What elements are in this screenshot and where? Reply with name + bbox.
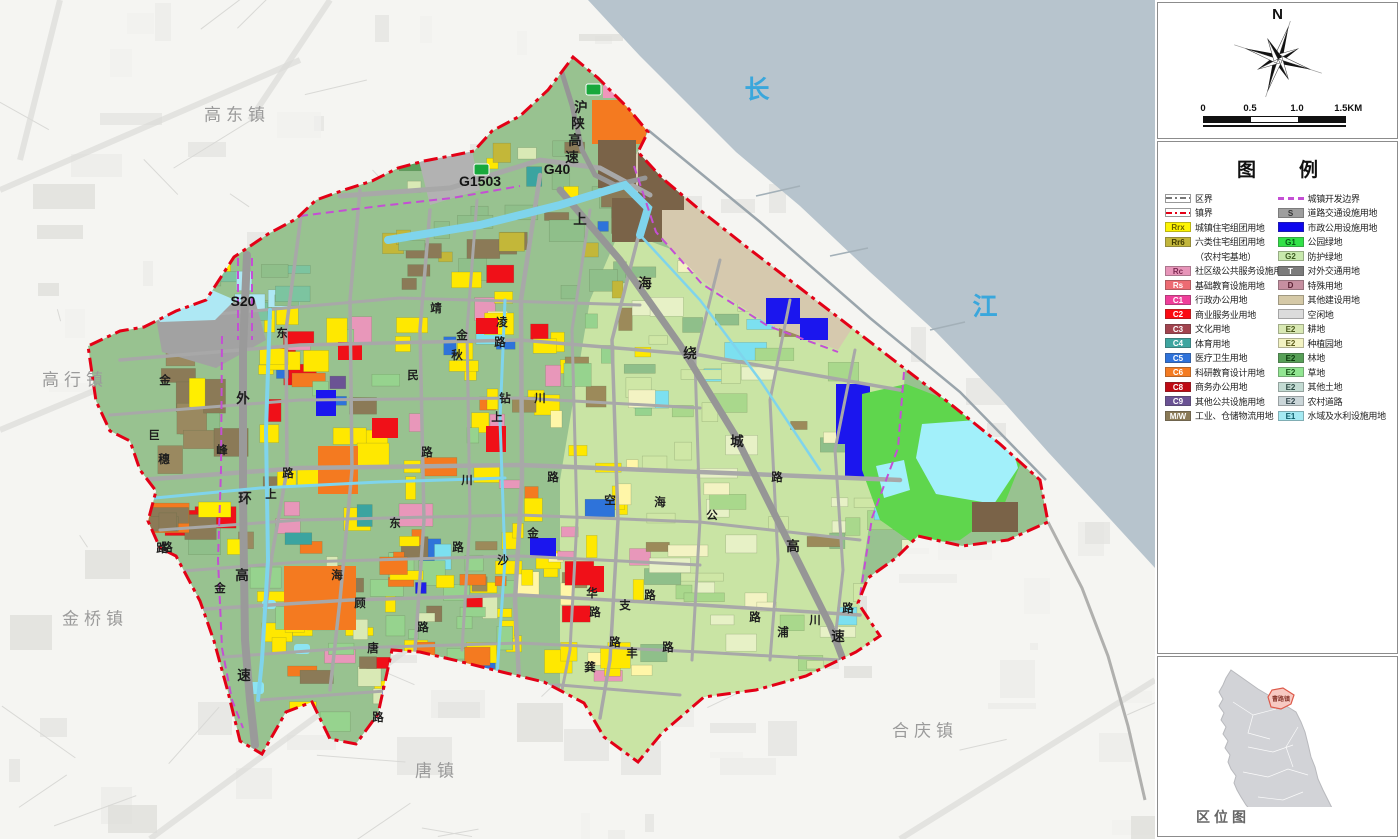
legend-item: C6科研教育设计用地 bbox=[1165, 365, 1278, 380]
legend-line-pattern bbox=[1166, 197, 1190, 199]
legend-color-swatch: G1 bbox=[1278, 237, 1304, 247]
legend-line-swatch bbox=[1165, 194, 1191, 203]
legend-item: 镇界 bbox=[1165, 206, 1278, 221]
legend-item-label: 商务办公用地 bbox=[1195, 380, 1247, 393]
legend-item: Rc社区级公共服务设施用地 bbox=[1165, 264, 1278, 279]
legend-item: 其他建设用地 bbox=[1278, 293, 1391, 308]
legend-item: M/W工业、仓储物流用地 bbox=[1165, 409, 1278, 424]
legend-sub-label: （农村宅基地） bbox=[1195, 250, 1256, 263]
legend-item-label: 种植园地 bbox=[1308, 337, 1343, 350]
legend-line-swatch bbox=[1278, 194, 1304, 203]
legend-item-label: 工业、仓储物流用地 bbox=[1195, 409, 1273, 422]
legend-color-swatch: G2 bbox=[1278, 251, 1304, 261]
legend-item-label: 六类住宅组团用地 bbox=[1195, 235, 1265, 248]
legend-item: C4体育用地 bbox=[1165, 336, 1278, 351]
locator-caption: 区位图 bbox=[1196, 807, 1250, 827]
legend-color-swatch: E2 bbox=[1278, 396, 1304, 406]
legend-line-pattern bbox=[1166, 212, 1190, 214]
legend-color-swatch: C6 bbox=[1165, 367, 1191, 377]
legend-color-swatch: Rc bbox=[1165, 266, 1191, 276]
scale-tick: 1.5KM bbox=[1334, 103, 1362, 114]
legend-columns: 区界镇界Rrx城镇住宅组团用地Rr6六类住宅组团用地（农村宅基地）Rc社区级公共… bbox=[1158, 191, 1397, 423]
legend-item: E2种植园地 bbox=[1278, 336, 1391, 351]
locator-panel: 曹路镇 区位图 bbox=[1157, 656, 1398, 837]
legend-color-swatch: E2 bbox=[1278, 382, 1304, 392]
legend-column-right: 城镇开发边界S道路交通设施用地市政公用设施用地G1公园绿地G2防护绿地T对外交通… bbox=[1278, 191, 1391, 423]
scale-bar-segments bbox=[1203, 116, 1346, 123]
legend-item: E2耕地 bbox=[1278, 322, 1391, 337]
legend-item-label: 区界 bbox=[1195, 192, 1212, 205]
legend-item: 市政公用设施用地 bbox=[1278, 220, 1391, 235]
legend-color-swatch: C1 bbox=[1165, 295, 1191, 305]
legend-color-swatch: Rr6 bbox=[1165, 237, 1191, 247]
legend-color-swatch: C5 bbox=[1165, 353, 1191, 363]
legend-item-label: 对外交通用地 bbox=[1308, 264, 1360, 277]
legend-item: 空闲地 bbox=[1278, 307, 1391, 322]
legend-color-swatch: Rs bbox=[1165, 280, 1191, 290]
legend-color-swatch bbox=[1278, 295, 1304, 305]
legend-item-label: 公园绿地 bbox=[1308, 235, 1343, 248]
legend-item: E1水域及水利设施用地 bbox=[1278, 409, 1391, 424]
legend-item-label: 草地 bbox=[1308, 366, 1325, 379]
legend-item: C9其他公共设施用地 bbox=[1165, 394, 1278, 409]
legend-color-swatch: E1 bbox=[1278, 411, 1304, 421]
legend-color-swatch: E2 bbox=[1278, 367, 1304, 377]
legend-color-swatch: C2 bbox=[1165, 309, 1191, 319]
north-arrow-icon bbox=[1223, 17, 1333, 101]
legend-color-swatch bbox=[1278, 309, 1304, 319]
legend-item: Rs基础教育设施用地 bbox=[1165, 278, 1278, 293]
legend-color-swatch bbox=[1278, 222, 1304, 232]
legend-item-label: 其他公共设施用地 bbox=[1195, 395, 1265, 408]
legend-item-label: 林地 bbox=[1308, 351, 1325, 364]
highway-shield-icon bbox=[474, 164, 489, 175]
locator-highlight-label: 曹路镇 bbox=[1272, 695, 1290, 703]
scale-tick: 1.0 bbox=[1290, 103, 1303, 114]
legend-color-swatch: T bbox=[1278, 266, 1304, 276]
north-label: N bbox=[1158, 6, 1397, 23]
legend-item: E2草地 bbox=[1278, 365, 1391, 380]
legend-item: C1行政办公用地 bbox=[1165, 293, 1278, 308]
legend-item: C3文化用地 bbox=[1165, 322, 1278, 337]
planning-map: 高东镇高行镇金桥镇唐镇合庆镇长江G1503G40S20沪陕高速上海绕城高速外环高… bbox=[0, 0, 1155, 839]
scale-segment bbox=[1251, 117, 1298, 122]
legend-item: C2商业服务业用地 bbox=[1165, 307, 1278, 322]
legend-item-label: 农村道路 bbox=[1308, 395, 1343, 408]
legend-item-label: 镇界 bbox=[1195, 206, 1212, 219]
legend-item-label: 防护绿地 bbox=[1308, 250, 1343, 263]
legend-item: C5医疗卫生用地 bbox=[1165, 351, 1278, 366]
legend-item: 区界 bbox=[1165, 191, 1278, 206]
legend-color-swatch: Rrx bbox=[1165, 222, 1191, 232]
legend-item-label: 行政办公用地 bbox=[1195, 293, 1247, 306]
legend-item-label: 医疗卫生用地 bbox=[1195, 351, 1247, 364]
legend-item-label: 社区级公共服务设施用地 bbox=[1195, 264, 1291, 277]
legend-item-label: 文化用地 bbox=[1195, 322, 1230, 335]
legend-item: Rr6六类住宅组团用地 bbox=[1165, 235, 1278, 250]
legend-item: Rrx城镇住宅组团用地 bbox=[1165, 220, 1278, 235]
legend-color-swatch: C8 bbox=[1165, 382, 1191, 392]
legend-item-label: 空闲地 bbox=[1308, 308, 1334, 321]
legend-item-label: 耕地 bbox=[1308, 322, 1325, 335]
legend-line-pattern bbox=[1278, 197, 1304, 200]
scale-tick-labels: 00.51.01.5KM bbox=[1203, 103, 1353, 116]
scale-bar-baseline bbox=[1203, 125, 1346, 127]
legend-item-label: 其他建设用地 bbox=[1308, 293, 1360, 306]
legend-color-swatch: E2 bbox=[1278, 338, 1304, 348]
legend-item-label: 体育用地 bbox=[1195, 337, 1230, 350]
north-scale-panel: N 00.51.01.5KM bbox=[1157, 2, 1398, 139]
legend-item-label: 特殊用地 bbox=[1308, 279, 1343, 292]
scale-segment bbox=[1204, 117, 1251, 122]
legend-item-label: 其他土地 bbox=[1308, 380, 1343, 393]
legend-item: E2其他土地 bbox=[1278, 380, 1391, 395]
legend-item-label: 市政公用设施用地 bbox=[1308, 221, 1378, 234]
legend-item: D特殊用地 bbox=[1278, 278, 1391, 293]
legend-color-swatch: C3 bbox=[1165, 324, 1191, 334]
legend-item: T对外交通用地 bbox=[1278, 264, 1391, 279]
legend-item: E2林地 bbox=[1278, 351, 1391, 366]
legend-item-label: 基础教育设施用地 bbox=[1195, 279, 1265, 292]
legend-item: S道路交通设施用地 bbox=[1278, 206, 1391, 221]
legend-item-label: 城镇开发边界 bbox=[1308, 192, 1360, 205]
legend-color-swatch: E2 bbox=[1278, 353, 1304, 363]
scale-tick: 0 bbox=[1200, 103, 1205, 114]
legend-color-swatch: S bbox=[1278, 208, 1304, 218]
legend-column-left: 区界镇界Rrx城镇住宅组团用地Rr6六类住宅组团用地（农村宅基地）Rc社区级公共… bbox=[1165, 191, 1278, 423]
legend-color-swatch: D bbox=[1278, 280, 1304, 290]
legend-color-swatch: C4 bbox=[1165, 338, 1191, 348]
legend-item: E2农村道路 bbox=[1278, 394, 1391, 409]
highway-shield-icon bbox=[586, 84, 601, 95]
legend-item-label: 科研教育设计用地 bbox=[1195, 366, 1265, 379]
legend-item-label: 城镇住宅组团用地 bbox=[1195, 221, 1265, 234]
legend-item: G2防护绿地 bbox=[1278, 249, 1391, 264]
app-root: 高东镇高行镇金桥镇唐镇合庆镇长江G1503G40S20沪陕高速上海绕城高速外环高… bbox=[0, 0, 1400, 839]
legend-panel: 图 例 区界镇界Rrx城镇住宅组团用地Rr6六类住宅组团用地（农村宅基地）Rc社… bbox=[1157, 141, 1398, 654]
legend-item: C8商务办公用地 bbox=[1165, 380, 1278, 395]
legend-color-swatch: M/W bbox=[1165, 411, 1191, 421]
legend-item-label: 道路交通设施用地 bbox=[1308, 206, 1378, 219]
locator-map: 曹路镇 bbox=[1158, 657, 1397, 807]
legend-item-label: 水域及水利设施用地 bbox=[1308, 409, 1386, 422]
scale-segment bbox=[1298, 117, 1345, 122]
legend-title: 图 例 bbox=[1158, 155, 1397, 182]
legend-item: G1公园绿地 bbox=[1278, 235, 1391, 250]
legend-item-label: 商业服务业用地 bbox=[1195, 308, 1256, 321]
scale-tick: 0.5 bbox=[1243, 103, 1256, 114]
legend-item: 城镇开发边界 bbox=[1278, 191, 1391, 206]
legend-line-swatch bbox=[1165, 208, 1191, 217]
legend-item: （农村宅基地） bbox=[1165, 249, 1278, 264]
map-graphic bbox=[0, 0, 1155, 839]
legend-color-swatch: E2 bbox=[1278, 324, 1304, 334]
legend-color-swatch: C9 bbox=[1165, 396, 1191, 406]
scale-bar: 00.51.01.5KM bbox=[1203, 103, 1353, 131]
